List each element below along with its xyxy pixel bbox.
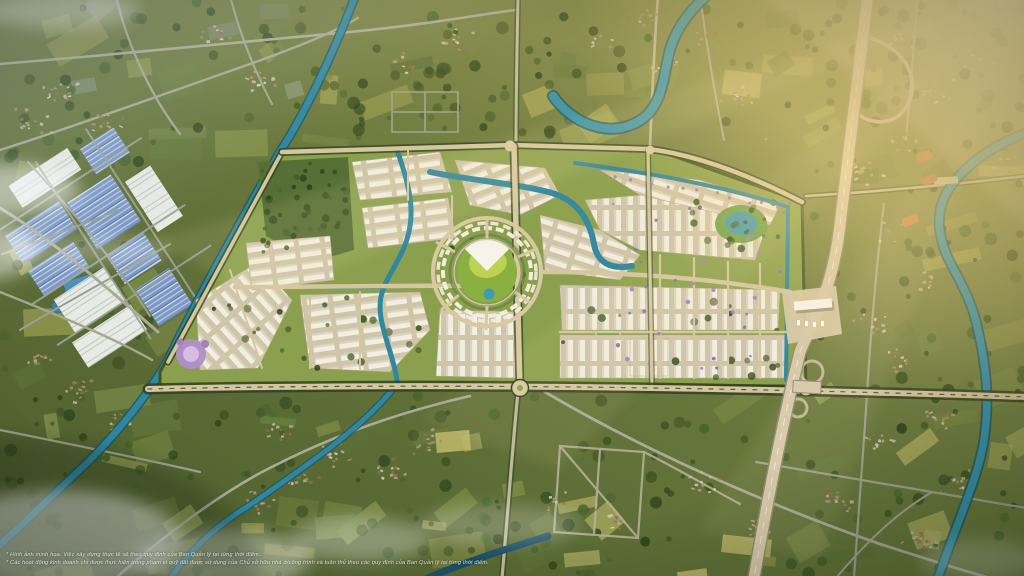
disclaimer-line-2: * Các hoạt động kinh doanh chỉ được thực… (6, 559, 489, 567)
aerial-render: * Hình ảnh minh họa. Việc xây dựng thực … (0, 0, 1024, 576)
vignette (0, 0, 1024, 576)
masterplan-scene (0, 0, 1024, 576)
disclaimer: * Hình ảnh minh họa. Việc xây dựng thực … (6, 551, 489, 567)
disclaimer-line-1: * Hình ảnh minh họa. Việc xây dựng thực … (6, 551, 489, 559)
